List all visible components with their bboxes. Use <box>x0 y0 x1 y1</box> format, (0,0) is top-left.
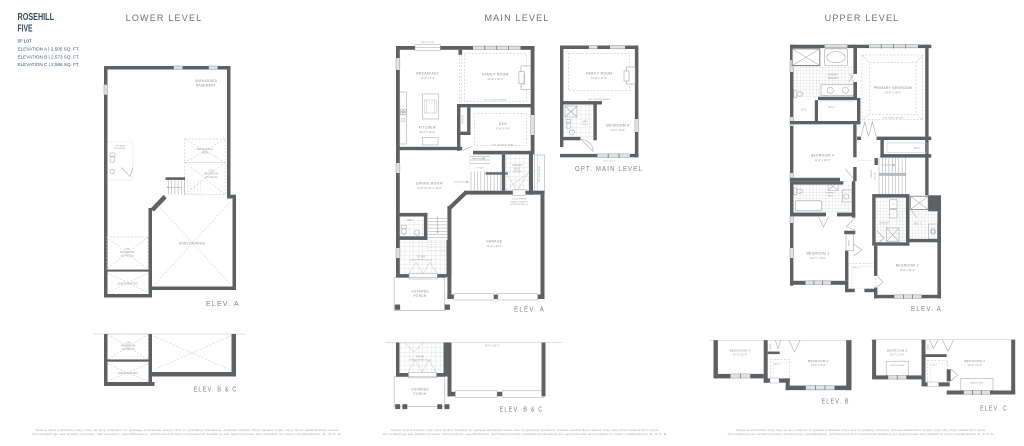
svg-text:PORCH: PORCH <box>413 294 426 298</box>
svg-text:9'-2" x 10'-0": 9'-2" x 10'-0" <box>611 128 626 132</box>
svg-text:MECHANICAL: MECHANICAL <box>196 147 214 151</box>
svg-text:W.I.C.: W.I.C. <box>914 147 921 150</box>
svg-text:OPT. TRAY CEILING: OPT. TRAY CEILING <box>883 116 904 119</box>
svg-text:W.I.C.: W.I.C. <box>801 109 808 112</box>
svg-text:(STEPS AS REQ'D): (STEPS AS REQ'D) <box>510 203 529 206</box>
svg-text:UNEXCAVATED: UNEXCAVATED <box>179 242 206 246</box>
svg-text:BEDROOM 2: BEDROOM 2 <box>965 359 986 363</box>
svg-text:12'-8" x 9'-0": 12'-8" x 9'-0" <box>496 127 511 131</box>
svg-text:ELEVATION C | 2,586 SQ. FT.: ELEVATION C | 2,586 SQ. FT. <box>18 62 80 67</box>
svg-text:FOYER: FOYER <box>417 256 426 259</box>
svg-text:14'-8" x 12'-0": 14'-8" x 12'-0" <box>487 77 503 81</box>
svg-text:FIVE: FIVE <box>18 24 33 35</box>
svg-text:ELEV. C: ELEV. C <box>980 404 1008 413</box>
svg-text:BEDROOM 2: BEDROOM 2 <box>808 359 829 363</box>
svg-text:WINDOW SEAT: WINDOW SEAT <box>890 364 904 367</box>
svg-text:(AS REQ'D): (AS REQ'D) <box>205 176 218 179</box>
svg-text:All renderings are artists con: All renderings are artists concept. Dime… <box>383 432 668 436</box>
svg-text:10'-7" x 11'-0": 10'-7" x 11'-0" <box>810 256 826 260</box>
svg-text:PATIO DOOR: PATIO DOOR <box>421 41 434 44</box>
svg-text:ENSUITE: ENSUITE <box>828 77 839 80</box>
svg-text:DINING ROOM: DINING ROOM <box>416 182 443 186</box>
svg-text:14'-8" x 15'-0": 14'-8" x 15'-0" <box>885 91 901 95</box>
svg-text:OPT. SIDE DOOR: OPT. SIDE DOOR <box>539 165 541 182</box>
svg-text:Steps and porches may vary at: Steps and porches may vary at any exteri… <box>391 428 659 432</box>
svg-text:BASEMENT: BASEMENT <box>196 84 216 88</box>
svg-text:OPT. MAIN LEVEL: OPT. MAIN LEVEL <box>575 164 643 173</box>
svg-text:37' LOT: 37' LOT <box>18 39 32 44</box>
svg-text:ELEV. B: ELEV. B <box>822 397 850 406</box>
svg-text:LINEN: LINEN <box>770 343 772 349</box>
svg-text:WINDOW SEAT: WINDOW SEAT <box>970 382 984 385</box>
svg-text:FIREPLACE: FIREPLACE <box>523 73 526 85</box>
svg-text:13'-6" x 10'-4": 13'-6" x 10'-4" <box>603 160 616 162</box>
svg-text:ELEVATION A | 2,505 SQ. FT.: ELEVATION A | 2,505 SQ. FT. <box>18 47 80 52</box>
svg-text:RAILING: RAILING <box>870 170 873 178</box>
svg-text:Steps and porches may vary at: Steps and porches may vary at any exteri… <box>736 428 986 432</box>
svg-text:ENS. 2: ENS. 2 <box>914 224 922 226</box>
svg-text:W.I.C.: W.I.C. <box>774 364 780 366</box>
svg-text:LOWER LEVEL: LOWER LEVEL <box>126 13 203 23</box>
svg-text:(AS REQ'D): (AS REQ'D) <box>122 348 135 351</box>
svg-text:DOOR WHERE: DOOR WHERE <box>512 199 527 201</box>
svg-text:OPT. CEILING DETAIL: OPT. CEILING DETAIL <box>492 143 515 146</box>
svg-text:LAUNDRY: LAUNDRY <box>879 222 890 225</box>
svg-text:W.I.C.: W.I.C. <box>932 365 938 367</box>
svg-text:19'-4" x 20'-4": 19'-4" x 20'-4" <box>485 345 500 348</box>
svg-text:12'-0" x 9'-2": 12'-0" x 9'-2" <box>420 76 435 80</box>
svg-text:GRADE PERMITS: GRADE PERMITS <box>510 200 528 203</box>
svg-text:10'-7" x 11'-0": 10'-7" x 11'-0" <box>890 354 905 357</box>
svg-text:(SUNKEN WHERE REQ'D): (SUNKEN WHERE REQ'D) <box>409 359 431 361</box>
svg-text:ELEV. A: ELEV. A <box>206 299 240 308</box>
svg-text:DEN: DEN <box>499 122 507 126</box>
svg-text:W.I.C.: W.I.C. <box>853 268 859 270</box>
svg-text:SHARED: SHARED <box>825 192 835 195</box>
svg-text:UNEXCAVATED: UNEXCAVATED <box>117 281 137 285</box>
svg-text:BEDROOM 4: BEDROOM 4 <box>811 154 834 158</box>
svg-text:DN 14R: DN 14R <box>875 172 877 180</box>
svg-text:GARAGE: GARAGE <box>486 240 503 244</box>
svg-text:ELEV. B & C: ELEV. B & C <box>194 385 238 394</box>
svg-text:FOYER: FOYER <box>416 356 425 359</box>
svg-text:19'-4" x 20'-4": 19'-4" x 20'-4" <box>486 244 502 248</box>
svg-text:12'-0" x 12'-0": 12'-0" x 12'-0" <box>419 130 435 134</box>
svg-text:Steps and porches may vary at: Steps and porches may vary at any exteri… <box>36 428 339 432</box>
svg-text:OPT. CEILING DETAIL: OPT. CEILING DETAIL <box>484 99 507 102</box>
svg-text:BREAKFAST: BREAKFAST <box>416 72 439 76</box>
svg-text:ELEV. A: ELEV. A <box>514 305 545 314</box>
svg-text:12'-4" x 10'-0": 12'-4" x 10'-0" <box>815 158 831 162</box>
svg-text:13'-8" (9'-11") x 12'-0": 13'-8" (9'-11") x 12'-0" <box>417 186 442 190</box>
svg-text:AREA: AREA <box>201 150 208 154</box>
svg-text:BEDROOM 3: BEDROOM 3 <box>887 349 908 353</box>
svg-text:OPT. CEILING DETAIL: OPT. CEILING DETAIL <box>588 98 611 101</box>
svg-text:BATH: BATH <box>582 120 588 123</box>
svg-text:W.I.C.: W.I.C. <box>829 106 836 109</box>
svg-text:COVERED: COVERED <box>411 388 429 392</box>
svg-text:UNEXCAVATED: UNEXCAVATED <box>117 371 137 375</box>
svg-text:ROSEHILL: ROSEHILL <box>18 12 55 23</box>
svg-text:BATH: BATH <box>827 195 833 198</box>
svg-text:UP 14R: UP 14R <box>477 168 485 170</box>
svg-text:PORCH: PORCH <box>413 392 426 396</box>
svg-text:COVERED: COVERED <box>411 290 429 294</box>
svg-text:ELEV. B & C: ELEV. B & C <box>500 405 544 414</box>
svg-text:PRIMARY BEDROOM: PRIMARY BEDROOM <box>874 86 912 90</box>
svg-text:BEDROOM 3: BEDROOM 3 <box>729 349 750 353</box>
svg-text:BEDROOM 3: BEDROOM 3 <box>806 252 829 256</box>
svg-text:PANTRY: PANTRY <box>462 114 465 124</box>
svg-text:FAMILY ROOM: FAMILY ROOM <box>482 73 509 77</box>
svg-text:FAMILY ROOM: FAMILY ROOM <box>586 72 613 76</box>
svg-text:All renderings are artists con: All renderings are artists concept. Dime… <box>728 432 995 436</box>
svg-text:ROUGH-IN: ROUGH-IN <box>115 148 126 150</box>
svg-text:ROOM: ROOM <box>513 171 520 174</box>
svg-text:10'-7" x 11'-0": 10'-7" x 11'-0" <box>733 354 748 357</box>
svg-text:MAIN LEVEL: MAIN LEVEL <box>484 13 549 23</box>
svg-text:LINEN: LINEN <box>927 343 929 349</box>
svg-text:BEDROOM 5: BEDROOM 5 <box>606 124 629 128</box>
svg-text:14'-8" x 17'-0": 14'-8" x 17'-0" <box>591 76 607 80</box>
svg-text:LINEN: LINEN <box>849 239 851 246</box>
svg-text:All renderings are artists con: All renderings are artists concept. Dime… <box>32 432 342 436</box>
svg-text:12'-4" x 11'-6": 12'-4" x 11'-6" <box>968 364 983 367</box>
svg-text:ELEVATION B | 2,573 SQ. FT.: ELEVATION B | 2,573 SQ. FT. <box>18 55 80 60</box>
svg-text:KITCHEN: KITCHEN <box>419 126 436 130</box>
svg-text:ELEV. A: ELEV. A <box>911 304 942 313</box>
svg-text:(AS REQ'D): (AS REQ'D) <box>121 254 134 257</box>
svg-text:PWD: PWD <box>407 220 413 222</box>
svg-text:UNFINISHED: UNFINISHED <box>195 79 218 83</box>
svg-text:NO. 5: NO. 5 <box>582 124 588 126</box>
svg-text:UPPER LEVEL: UPPER LEVEL <box>825 13 900 23</box>
svg-text:12'-4" x 11'-6": 12'-4" x 11'-6" <box>899 268 915 272</box>
svg-text:BEDROOM 2: BEDROOM 2 <box>896 264 919 268</box>
svg-text:12'-4" x 11'-6": 12'-4" x 11'-6" <box>811 364 826 367</box>
svg-text:(SUNKEN WHERE REQ'D): (SUNKEN WHERE REQ'D) <box>410 259 432 261</box>
